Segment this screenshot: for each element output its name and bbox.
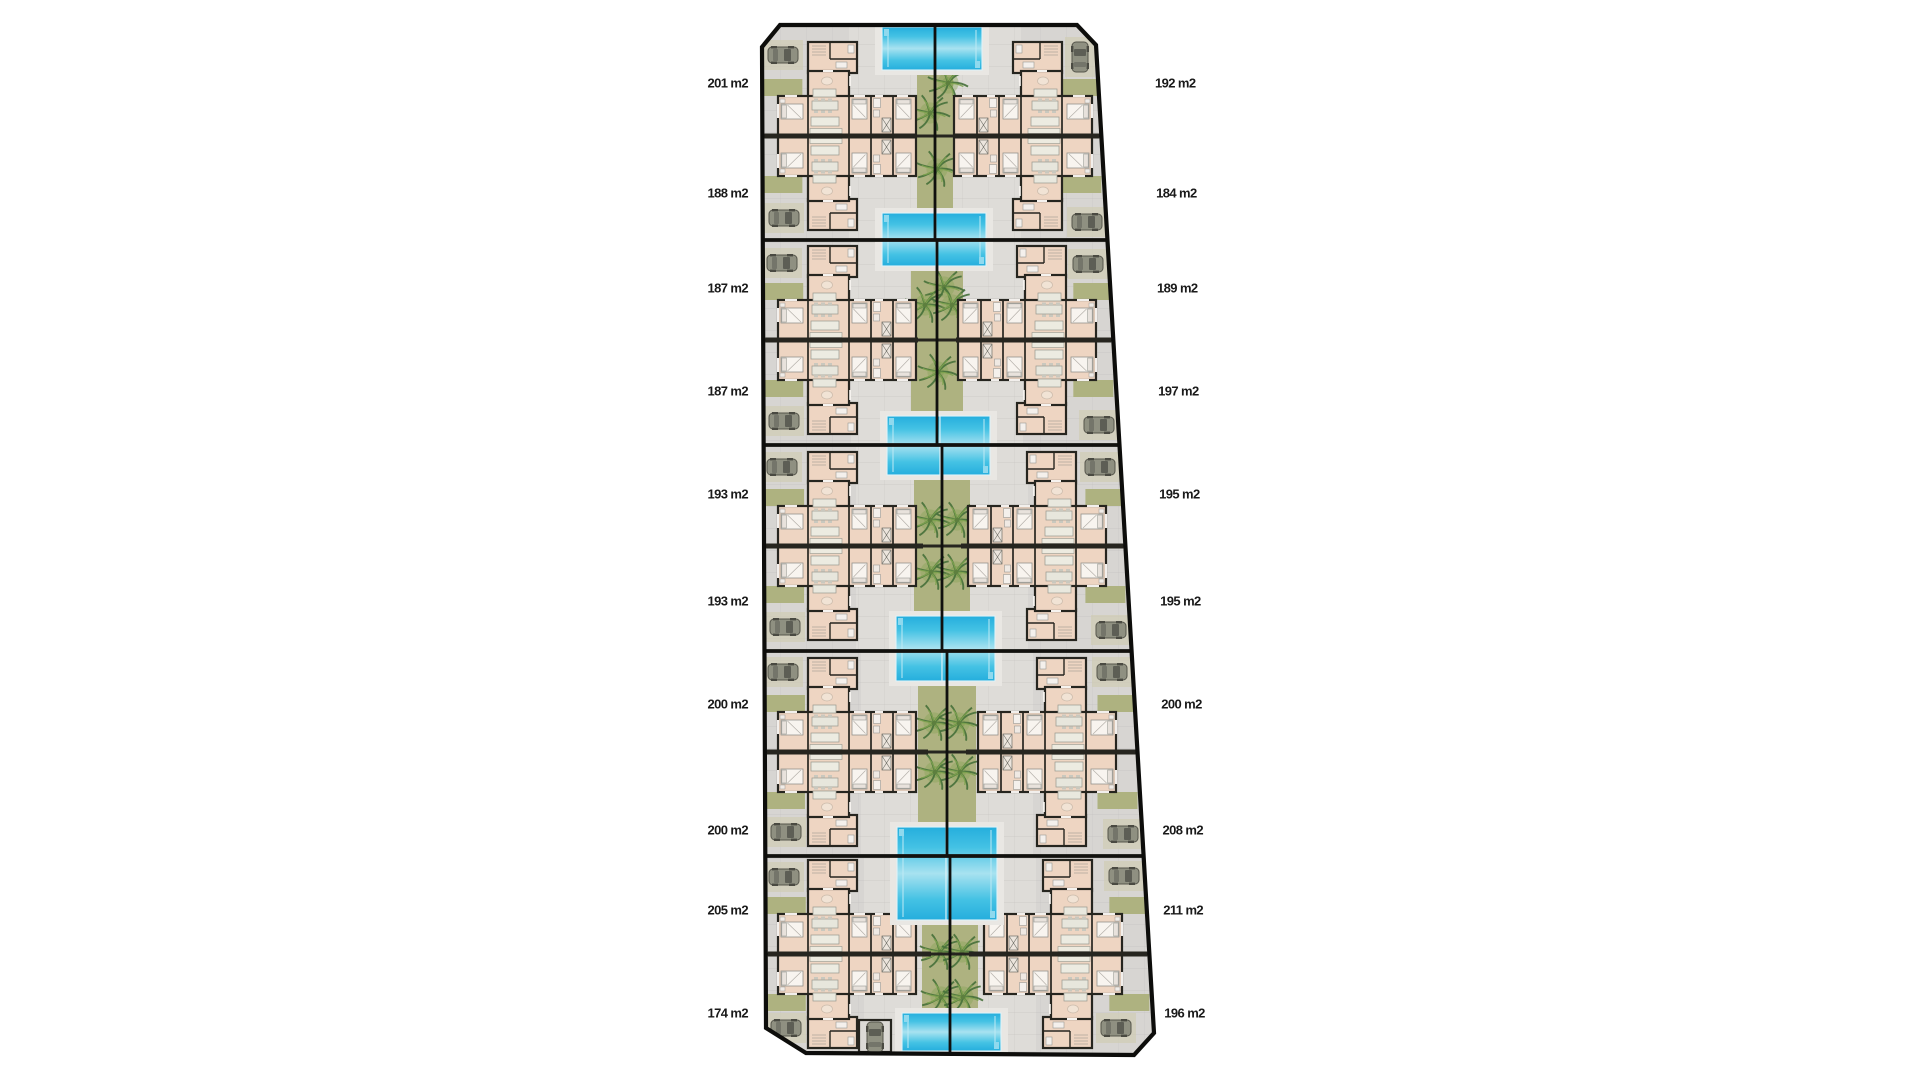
svg-text:184 m2: 184 m2 <box>1156 186 1197 201</box>
svg-text:201 m2: 201 m2 <box>708 76 749 91</box>
svg-text:205 m2: 205 m2 <box>708 903 749 918</box>
svg-text:174 m2: 174 m2 <box>708 1006 749 1021</box>
svg-text:195 m2: 195 m2 <box>1160 594 1201 609</box>
svg-text:197 m2: 197 m2 <box>1158 384 1199 399</box>
svg-text:200 m2: 200 m2 <box>708 823 749 838</box>
svg-text:195 m2: 195 m2 <box>1159 487 1200 502</box>
svg-text:187 m2: 187 m2 <box>708 384 749 399</box>
svg-text:187 m2: 187 m2 <box>708 281 749 296</box>
svg-text:211 m2: 211 m2 <box>1163 903 1203 918</box>
svg-text:193 m2: 193 m2 <box>708 594 749 609</box>
svg-text:208 m2: 208 m2 <box>1162 823 1203 838</box>
svg-text:200 m2: 200 m2 <box>708 697 749 712</box>
svg-text:196 m2: 196 m2 <box>1164 1006 1205 1021</box>
svg-text:200 m2: 200 m2 <box>1161 697 1202 712</box>
svg-text:188 m2: 188 m2 <box>708 186 749 201</box>
svg-text:189 m2: 189 m2 <box>1157 281 1198 296</box>
svg-text:192 m2: 192 m2 <box>1155 76 1196 91</box>
svg-text:193 m2: 193 m2 <box>708 487 749 502</box>
